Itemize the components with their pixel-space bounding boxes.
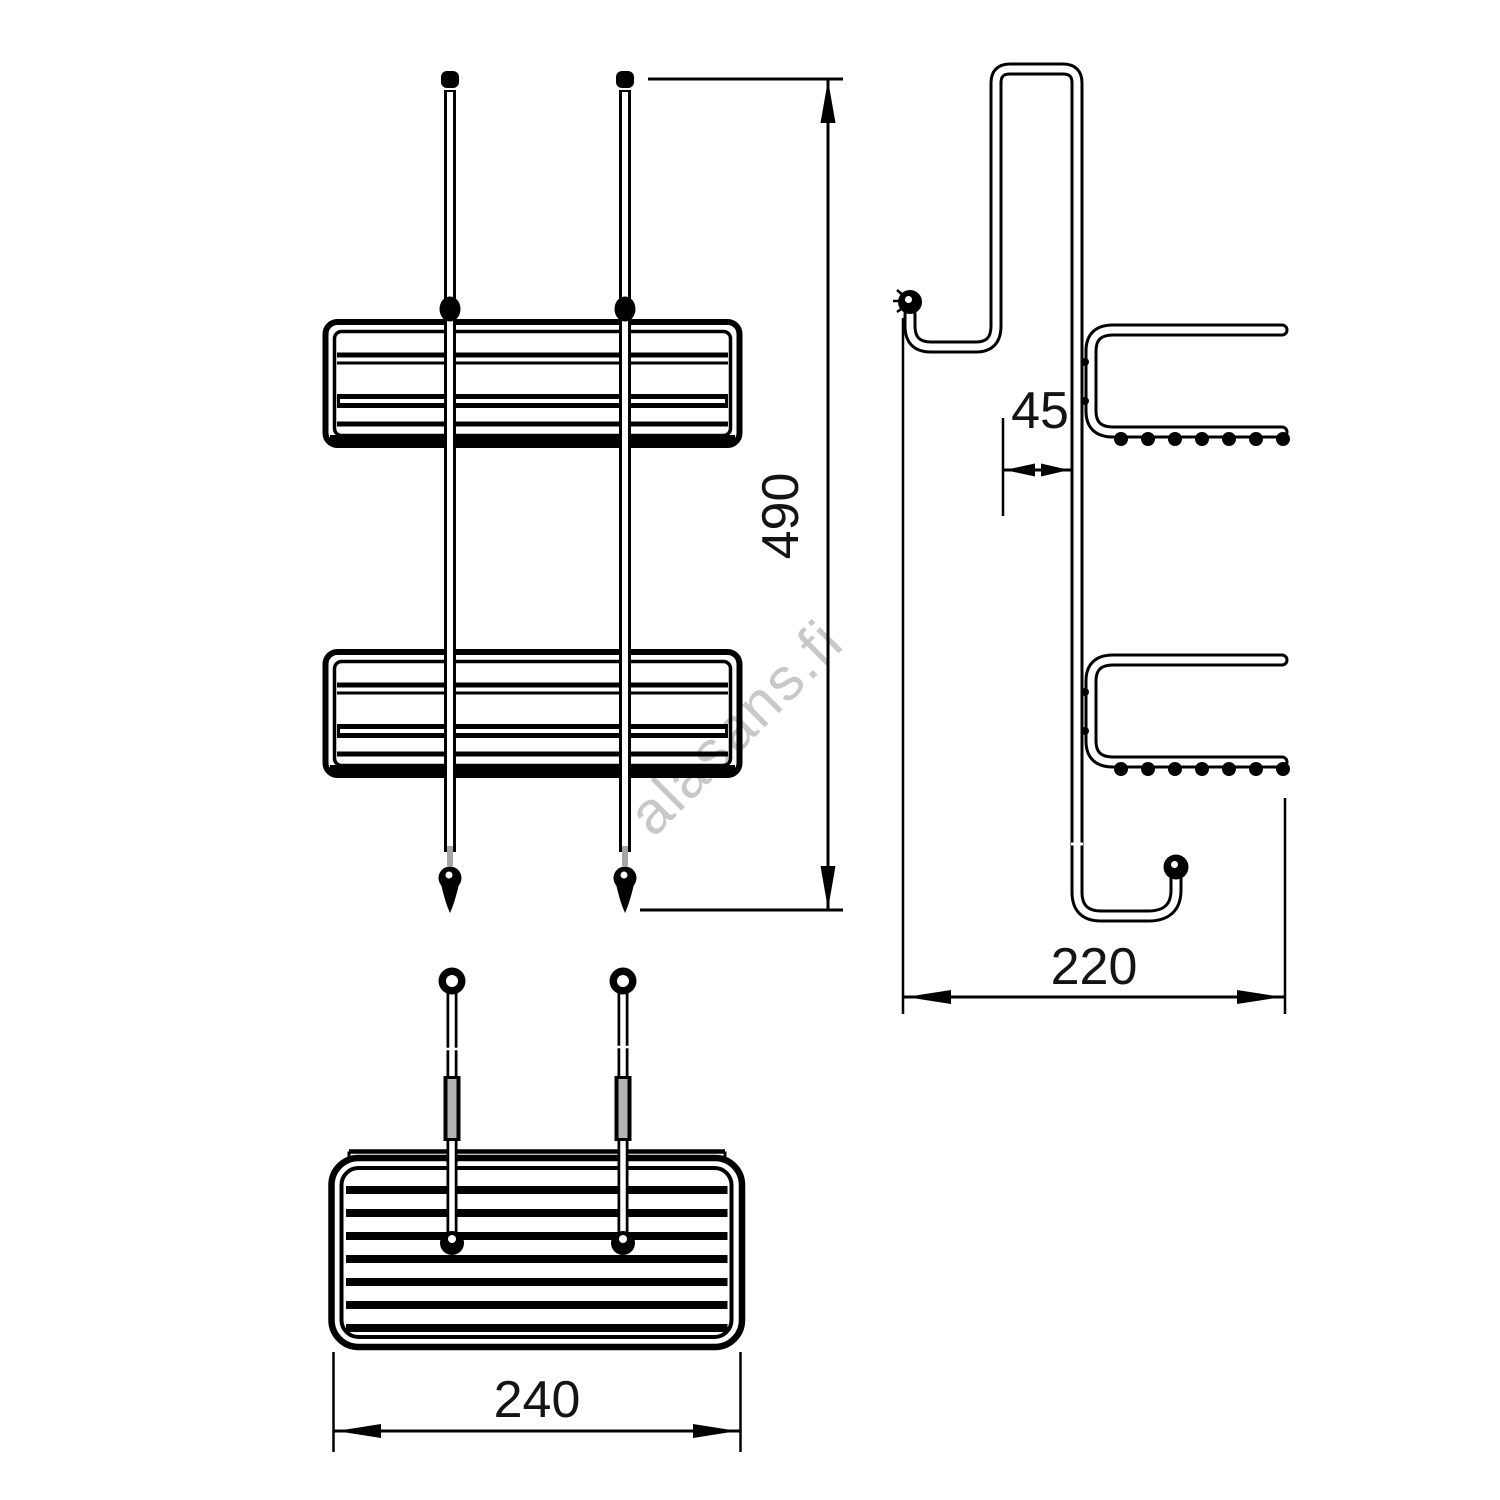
dimension-side-depth-label: 220 — [1051, 938, 1138, 996]
dimension-basket-width: 240 — [334, 1352, 741, 1452]
top-view — [332, 968, 743, 1348]
dimension-hook-opening: 45 — [1003, 382, 1071, 516]
rod-top-cap — [616, 71, 634, 88]
dimension-basket-width-label: 240 — [494, 1371, 581, 1429]
hanging-rod-left — [439, 71, 462, 913]
basket-side-profile-lower — [1081, 660, 1290, 776]
hook-end-ball-left — [893, 290, 922, 314]
basket-side-profile-upper — [1081, 330, 1290, 446]
hook-end-ball-bottom — [1164, 855, 1189, 880]
side-view — [893, 69, 1290, 916]
dimension-overall-height-label: 490 — [752, 473, 810, 560]
rod-top-cap — [441, 71, 459, 88]
dimension-hook-opening-label: 45 — [1011, 382, 1069, 440]
technical-drawing-page: alasans.fi — [0, 0, 1500, 1500]
door-hook-wire — [910, 69, 1176, 916]
wire-basket-front-upper — [326, 322, 740, 445]
basket-top-view — [332, 1152, 743, 1348]
technical-drawing: alasans.fi — [0, 0, 1500, 1500]
rod-weld-ball — [440, 297, 461, 322]
rod-weld-ball — [615, 297, 636, 322]
